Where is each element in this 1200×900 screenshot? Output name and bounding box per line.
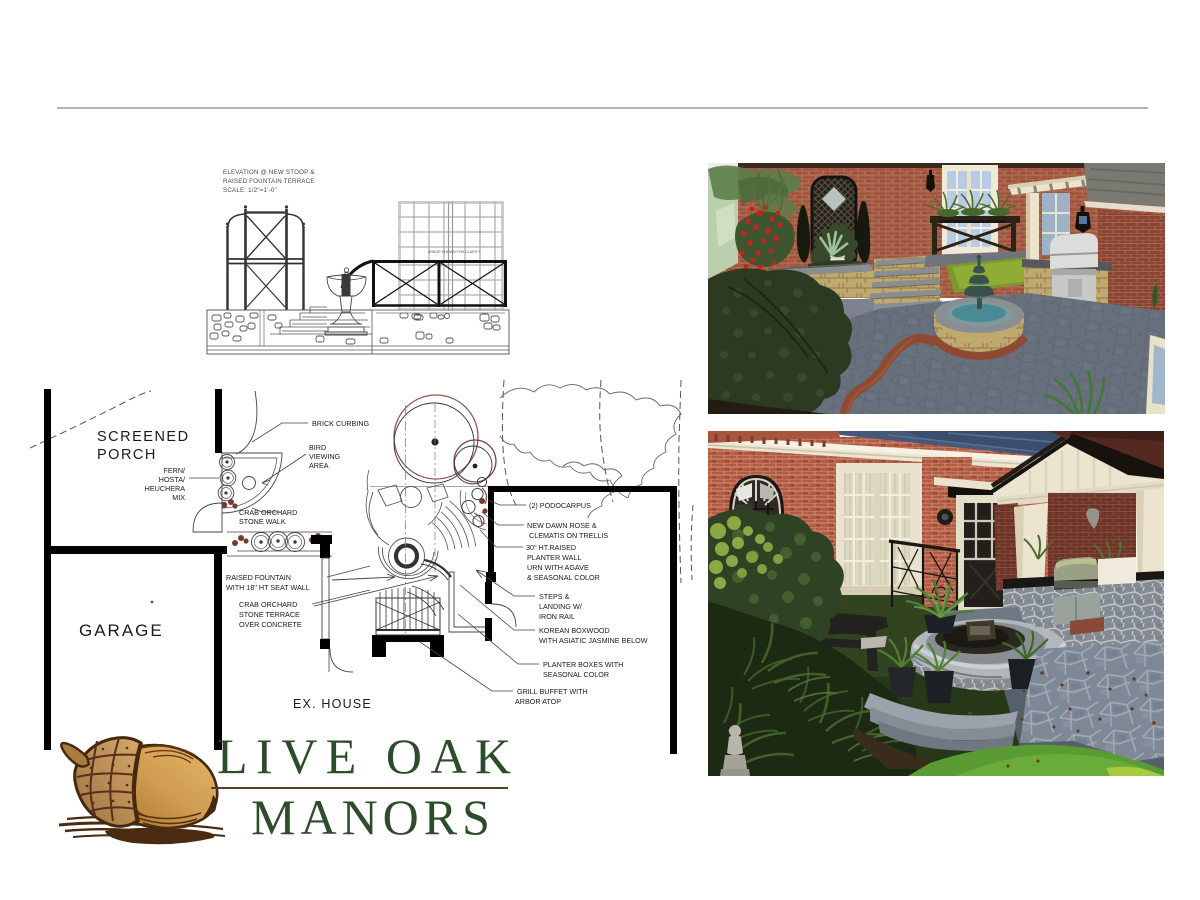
svg-text:SEASONAL COLOR: SEASONAL COLOR — [543, 670, 609, 679]
svg-text:OVER CONCRETE: OVER CONCRETE — [239, 620, 302, 629]
svg-text:ARBOR ATOP: ARBOR ATOP — [515, 697, 561, 706]
svg-text:PLANTER BOXES WITH: PLANTER BOXES WITH — [543, 660, 623, 669]
svg-text:30" HT.RAISED: 30" HT.RAISED — [526, 543, 576, 552]
svg-text:STONE TERRACE: STONE TERRACE — [239, 610, 300, 619]
svg-text:ARBOR SHOWN FOR CLARITY: ARBOR SHOWN FOR CLARITY — [428, 250, 481, 254]
svg-text:PLANTER WALL: PLANTER WALL — [527, 553, 581, 562]
svg-text:PORCH: PORCH — [97, 447, 157, 463]
svg-text:GRILL BUFFET WITH: GRILL BUFFET WITH — [517, 687, 588, 696]
svg-text:LANDING W/: LANDING W/ — [539, 602, 582, 611]
svg-text:WITH ASIATIC JASMINE BELOW: WITH ASIATIC JASMINE BELOW — [539, 636, 648, 645]
svg-text:CRAB ORCHARD: CRAB ORCHARD — [239, 600, 297, 609]
svg-text:NEW DAWN ROSE &: NEW DAWN ROSE & — [527, 521, 597, 530]
svg-text:RAISED FOUNTAIN TERRACE: RAISED FOUNTAIN TERRACE — [223, 178, 315, 185]
svg-text:SCALE: 1/2"=1'-0": SCALE: 1/2"=1'-0" — [223, 187, 277, 194]
svg-text:WITH 18" HT SEAT WALL: WITH 18" HT SEAT WALL — [226, 583, 310, 592]
svg-text:(2) PODOCARPUS: (2) PODOCARPUS — [529, 501, 591, 510]
svg-text:CRAB ORCHARD: CRAB ORCHARD — [239, 508, 297, 517]
svg-text:FERN/: FERN/ — [163, 466, 185, 475]
svg-text:& SEASONAL COLOR: & SEASONAL COLOR — [527, 573, 600, 582]
svg-text:SCREENED: SCREENED — [97, 429, 190, 445]
svg-text:GARAGE: GARAGE — [79, 621, 164, 640]
svg-text:STEPS &: STEPS & — [539, 592, 570, 601]
svg-text:EX. HOUSE: EX. HOUSE — [293, 697, 372, 711]
svg-text:CLEMATIS ON TRELLIS: CLEMATIS ON TRELLIS — [529, 531, 608, 540]
svg-text:HOSTA/: HOSTA/ — [159, 475, 185, 484]
svg-text:STONE WALK: STONE WALK — [239, 517, 286, 526]
svg-text:HEUCHERA: HEUCHERA — [145, 484, 186, 493]
svg-text:ELEVATION @ NEW STOOP &: ELEVATION @ NEW STOOP & — [223, 169, 315, 176]
svg-text:MIX: MIX — [172, 493, 185, 502]
svg-text:BIRD: BIRD — [309, 443, 326, 452]
svg-text:IRON RAIL: IRON RAIL — [539, 612, 575, 621]
svg-text:RAISED FOUNTAIN: RAISED FOUNTAIN — [226, 573, 291, 582]
svg-text:VIEWING: VIEWING — [309, 452, 341, 461]
svg-text:URN WITH AGAVE: URN WITH AGAVE — [527, 563, 589, 572]
svg-text:AREA: AREA — [309, 461, 329, 470]
svg-text:BRICK CURBING: BRICK CURBING — [312, 419, 370, 428]
svg-text:KOREAN BOXWOOD: KOREAN BOXWOOD — [539, 626, 610, 635]
